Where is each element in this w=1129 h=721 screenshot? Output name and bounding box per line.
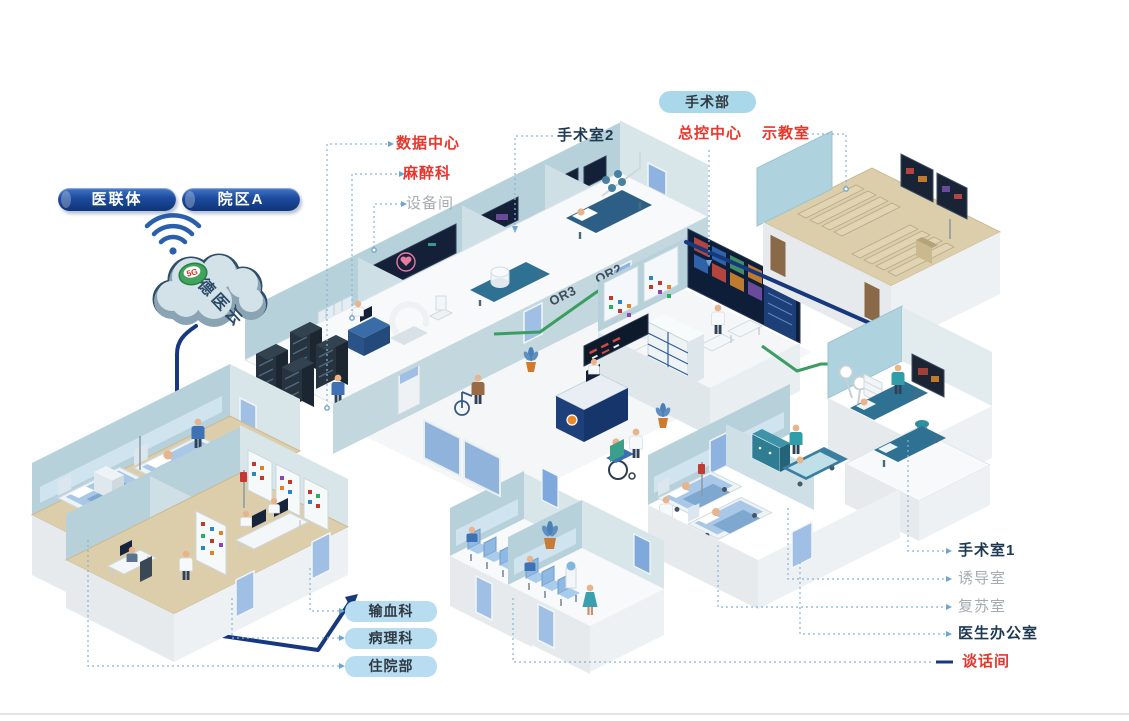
room-waiting [450,468,664,674]
pill-medical-alliance: 医联体 [58,188,176,211]
hospital-diagram-stage: OR3 OR2 [0,0,1129,721]
desk-logo [567,415,577,425]
callout-anesthesia: 麻醉科 [403,166,451,182]
callout-induction: 诱导室 [958,571,1006,587]
pill-pathology: 病理科 [345,628,437,649]
wifi-icon [147,215,199,254]
bottom-divider [0,713,1129,715]
badge-surgery-department: 手术部 [659,91,756,113]
pill-blood-transfusion: 输血科 [345,601,437,622]
callout-demo-room: 示教室 [762,126,810,142]
water-dispenser [566,562,576,589]
callout-talk-room: 谈话间 [962,654,1010,670]
pill-campus-a: 院区A [182,188,300,211]
callout-master-control: 总控中心 [678,126,742,142]
lab-door-2 [312,533,330,579]
pill-inpatient: 住院部 [345,656,437,677]
person-induction-nurse [790,425,803,454]
waiting-door-2 [538,604,554,648]
lab-door-1 [236,571,254,617]
callout-data-center: 数据中心 [396,136,460,152]
cloud-illustration: 德医云 5G [153,254,268,332]
callout-doctor-office: 医生办公室 [958,626,1038,642]
callout-equipment-room: 设备间 [406,196,454,212]
recovery-front-se [758,489,900,609]
classroom-door-1 [770,234,786,278]
callout-or1: 手术室1 [958,543,1015,559]
building-inpatient [32,364,348,662]
callout-recovery: 复苏室 [958,599,1006,615]
callout-or2: 手术室2 [557,128,614,144]
waiting-door-1 [476,576,492,620]
